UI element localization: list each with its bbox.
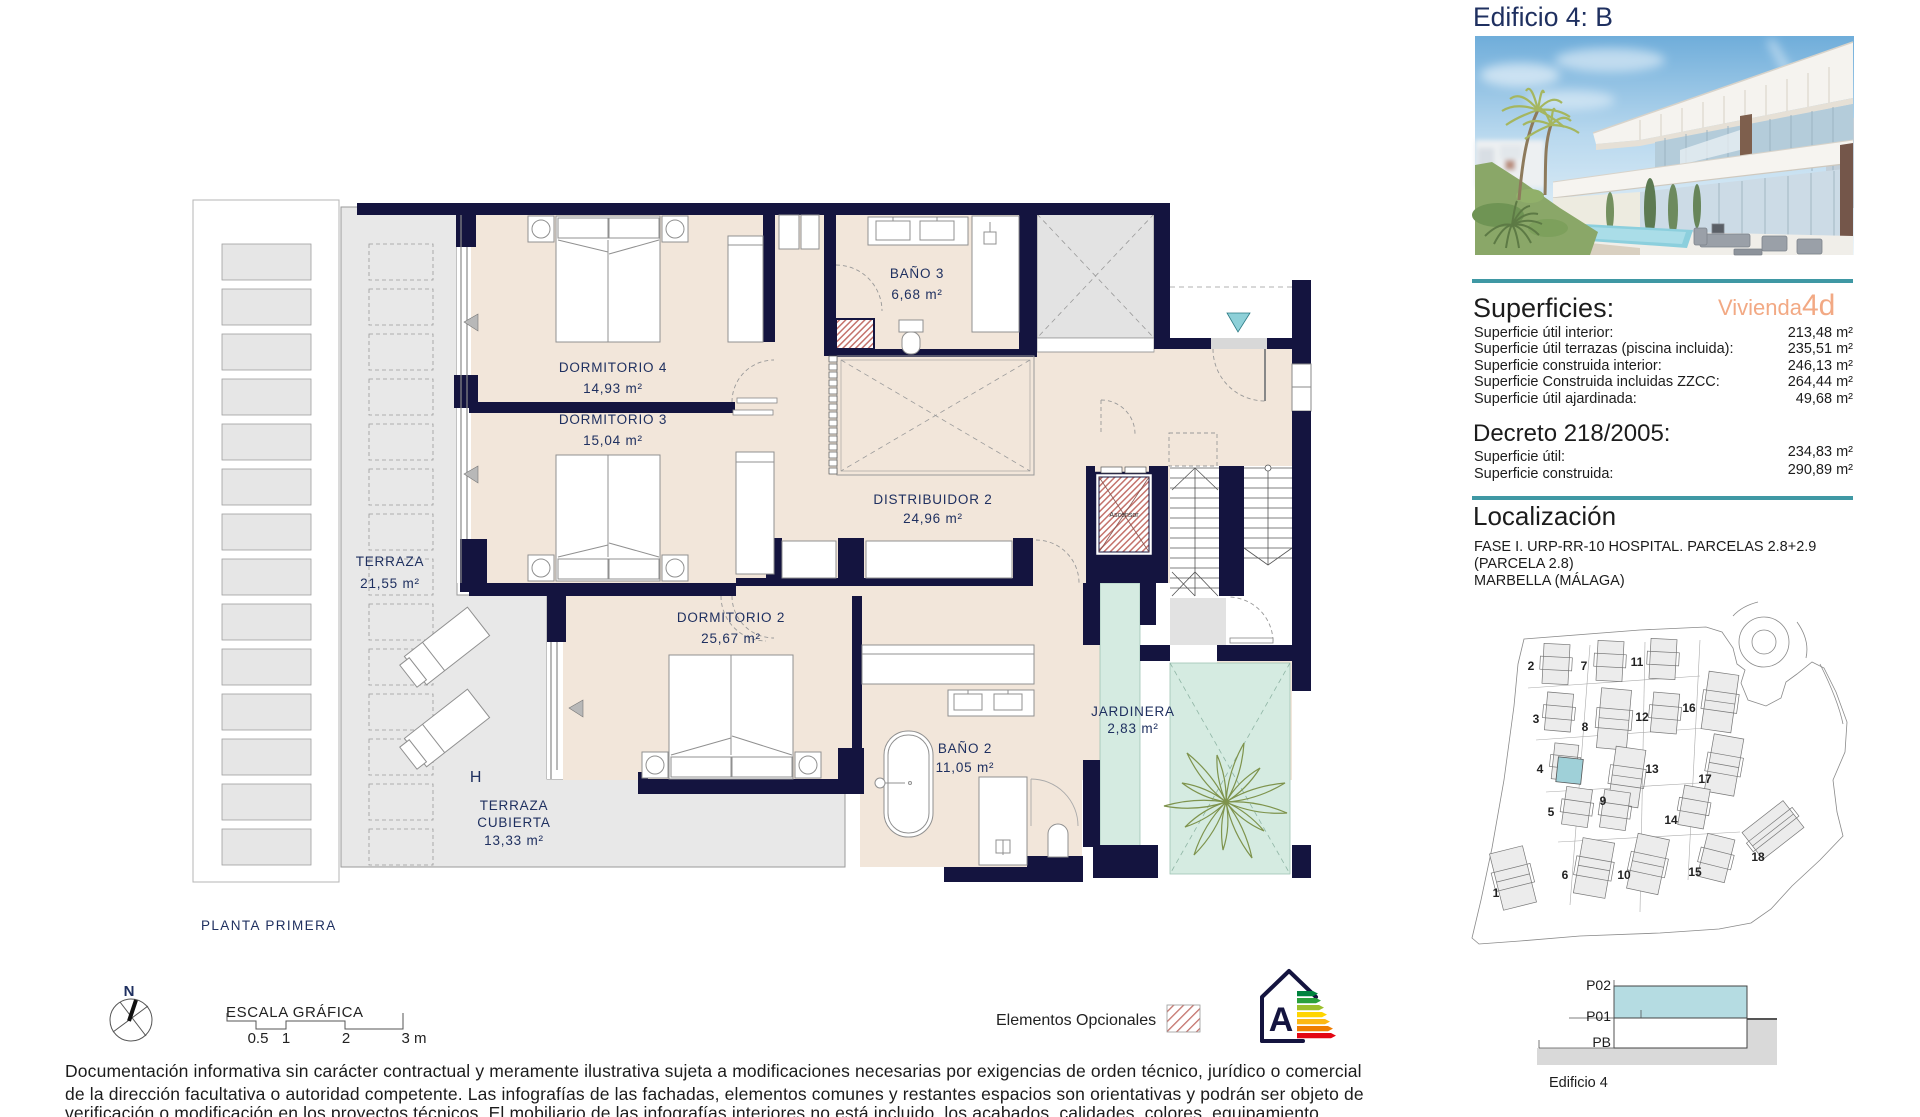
svg-text:PB: PB [1592,1034,1611,1050]
svg-text:PLANTA PRIMERA: PLANTA PRIMERA [201,918,337,933]
svg-text:15,04 m²: 15,04 m² [583,433,643,448]
svg-text:21,55 m²: 21,55 m² [360,576,420,591]
svg-text:8: 8 [1582,720,1589,734]
svg-text:3: 3 [1533,712,1540,726]
svg-text:1: 1 [282,1030,290,1047]
svg-text:CUBIERTA: CUBIERTA [477,815,550,830]
svg-text:9: 9 [1600,794,1607,808]
svg-text:Superficie construida:: Superficie construida: [1474,466,1613,482]
svg-text:Vivienda4d: Vivienda4d [1718,289,1835,322]
svg-text:P01: P01 [1586,1008,1611,1024]
svg-text:DORMITORIO 2: DORMITORIO 2 [677,610,785,625]
svg-text:2: 2 [342,1030,350,1047]
svg-text:24,96 m²: 24,96 m² [903,511,963,526]
svg-text:TERRAZA: TERRAZA [356,554,425,569]
svg-text:DORMITORIO 4: DORMITORIO 4 [559,360,667,375]
svg-text:2,83 m²: 2,83 m² [1107,721,1158,736]
svg-text:4: 4 [1537,762,1544,776]
svg-text:14,93 m²: 14,93 m² [583,381,643,396]
svg-text:Edificio 4: Edificio 4 [1549,1075,1608,1091]
svg-text:5: 5 [1548,805,1555,819]
svg-text:49,68 m²: 49,68 m² [1796,391,1853,407]
svg-text:235,51 m²: 235,51 m² [1788,341,1853,357]
svg-text:2: 2 [1528,659,1535,673]
svg-text:6,68 m²: 6,68 m² [891,287,942,302]
svg-text:246,13 m²: 246,13 m² [1788,358,1853,374]
svg-text:Edificio 4: B: Edificio 4: B [1473,2,1613,32]
svg-text:Decreto 218/2005:: Decreto 218/2005: [1473,420,1670,447]
svg-text:1: 1 [1493,886,1500,900]
svg-text:MARBELLA (MÁLAGA): MARBELLA (MÁLAGA) [1474,572,1625,589]
svg-text:Documentación informativa sin: Documentación informativa sin carácter c… [65,1061,1362,1081]
svg-text:N: N [124,983,135,1000]
svg-text:DISTRIBUIDOR 2: DISTRIBUIDOR 2 [873,492,992,507]
svg-text:JARDINERA: JARDINERA [1091,704,1175,719]
svg-text:P02: P02 [1586,977,1611,993]
svg-text:13: 13 [1645,762,1659,776]
svg-text:6: 6 [1562,868,1569,882]
svg-text:18: 18 [1751,850,1765,864]
svg-text:13,33 m²: 13,33 m² [484,833,544,848]
svg-text:H: H [470,769,482,786]
svg-text:10: 10 [1617,868,1631,882]
svg-text:3 m: 3 m [401,1030,426,1047]
svg-text:DORMITORIO 3: DORMITORIO 3 [559,412,667,427]
svg-text:verificación o modificación en: verificación o modificación en los proye… [65,1103,1324,1117]
svg-text:264,44 m²: 264,44 m² [1788,374,1853,390]
svg-text:Superficie útil terrazas (pisc: Superficie útil terrazas (piscina inclui… [1474,341,1734,357]
svg-text:(PARCELA 2.8): (PARCELA 2.8) [1474,556,1574,572]
svg-text:A: A [1269,1001,1294,1039]
svg-text:16: 16 [1682,701,1696,715]
svg-text:25,67 m²: 25,67 m² [701,631,761,646]
svg-text:Superficie útil interior:: Superficie útil interior: [1474,325,1613,341]
svg-text:ESCALA GRÁFICA: ESCALA GRÁFICA [226,1004,364,1021]
svg-text:17: 17 [1698,772,1712,786]
svg-text:Superficie construida interior: Superficie construida interior: [1474,358,1662,374]
svg-text:290,89 m²: 290,89 m² [1788,462,1853,478]
svg-text:BAÑO 3: BAÑO 3 [890,266,944,281]
svg-text:12: 12 [1635,710,1649,724]
svg-text:TERRAZA: TERRAZA [480,798,549,813]
svg-text:Superficie Construida incluida: Superficie Construida incluidas ZZCC: [1474,374,1720,390]
svg-text:11: 11 [1631,655,1644,669]
svg-text:Elementos Opcionales: Elementos Opcionales [996,1012,1156,1029]
svg-text:de la dirección facultativa o: de la dirección facultativa o autoridad … [65,1084,1364,1104]
svg-text:234,83 m²: 234,83 m² [1788,444,1853,460]
svg-text:BAÑO 2: BAÑO 2 [938,741,992,756]
svg-text:0.5: 0.5 [248,1030,269,1047]
svg-text:7: 7 [1581,659,1588,673]
svg-text:213,48 m²: 213,48 m² [1788,325,1853,341]
svg-text:14: 14 [1664,813,1678,827]
svg-text:15: 15 [1688,865,1702,879]
svg-text:Localización: Localización [1473,501,1616,531]
svg-text:11,05 m²: 11,05 m² [936,760,995,775]
svg-text:Superficies:: Superficies: [1473,293,1614,323]
svg-text:Superficie útil:: Superficie útil: [1474,449,1565,465]
svg-text:Superficie útil ajardinada:: Superficie útil ajardinada: [1474,391,1637,407]
svg-text:FASE I. URP-RR-10 HOSPITAL. PA: FASE I. URP-RR-10 HOSPITAL. PARCELAS 2.8… [1474,539,1816,555]
svg-text:Ascensor: Ascensor [1109,512,1139,519]
